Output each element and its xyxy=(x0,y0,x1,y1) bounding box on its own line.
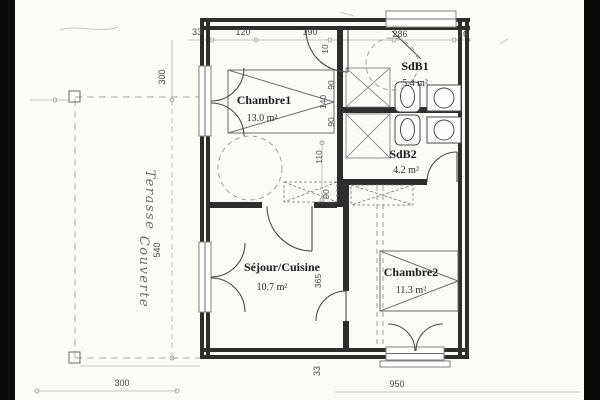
dim-int-90c: 90 xyxy=(321,189,331,199)
sink-icon-sdb2 xyxy=(427,117,461,143)
floor-plan-drawing: Chambre1 13.0 m² SdB1 5.4 m² SdB2 4.2 m²… xyxy=(0,0,600,400)
dim-left-540: 540 xyxy=(152,242,162,257)
floor-plan-scan: Chambre1 13.0 m² SdB1 5.4 m² SdB2 4.2 m²… xyxy=(0,0,600,400)
dim-int-90b: 90 xyxy=(326,117,336,127)
dim-int-10: 10 xyxy=(320,44,330,54)
scan-border-left xyxy=(0,0,15,400)
dim-bottom-950: 950 xyxy=(389,379,404,389)
dim-left-300: 300 xyxy=(157,69,167,84)
sink-icon-sdb1 xyxy=(427,85,461,111)
paper-background xyxy=(0,0,600,400)
dim-top-286: 286 xyxy=(392,29,407,39)
dim-int-140: 140 xyxy=(318,95,328,109)
room-label-sdb1: SdB1 xyxy=(401,59,428,73)
terrace-label-line2: Couverte xyxy=(136,236,151,308)
dim-top-33: 33 xyxy=(192,27,202,37)
dim-int-365: 365 xyxy=(313,274,323,288)
room-area-sdb1: 5.4 m² xyxy=(402,78,428,89)
dim-top-190: 190 xyxy=(302,27,317,37)
room-label-sejour: Séjour/Cuisine xyxy=(244,260,321,274)
terrace-label-line1: Terasse xyxy=(142,170,157,231)
dim-bottom-300: 300 xyxy=(114,378,129,388)
window-sill xyxy=(380,361,450,367)
dim-bottom-33: 33 xyxy=(312,366,322,376)
toilet-icon-sdb2 xyxy=(395,115,420,145)
room-label-chambre2: Chambre2 xyxy=(384,265,438,279)
room-area-sejour: 10.7 m² xyxy=(257,282,288,293)
room-area-sdb2: 4.2 m² xyxy=(393,165,419,176)
room-area-chambre2: 11.3 m² xyxy=(396,285,426,296)
room-label-chambre1: Chambre1 xyxy=(237,93,291,107)
scan-border-right xyxy=(584,0,600,400)
dim-int-90a: 90 xyxy=(326,80,336,90)
dim-int-110: 110 xyxy=(314,150,324,164)
room-area-chambre1: 13.0 m² xyxy=(247,113,278,124)
dim-top-16: 16 xyxy=(458,29,468,39)
dim-top-120: 120 xyxy=(235,27,250,37)
room-label-sdb2: SdB2 xyxy=(389,147,416,161)
